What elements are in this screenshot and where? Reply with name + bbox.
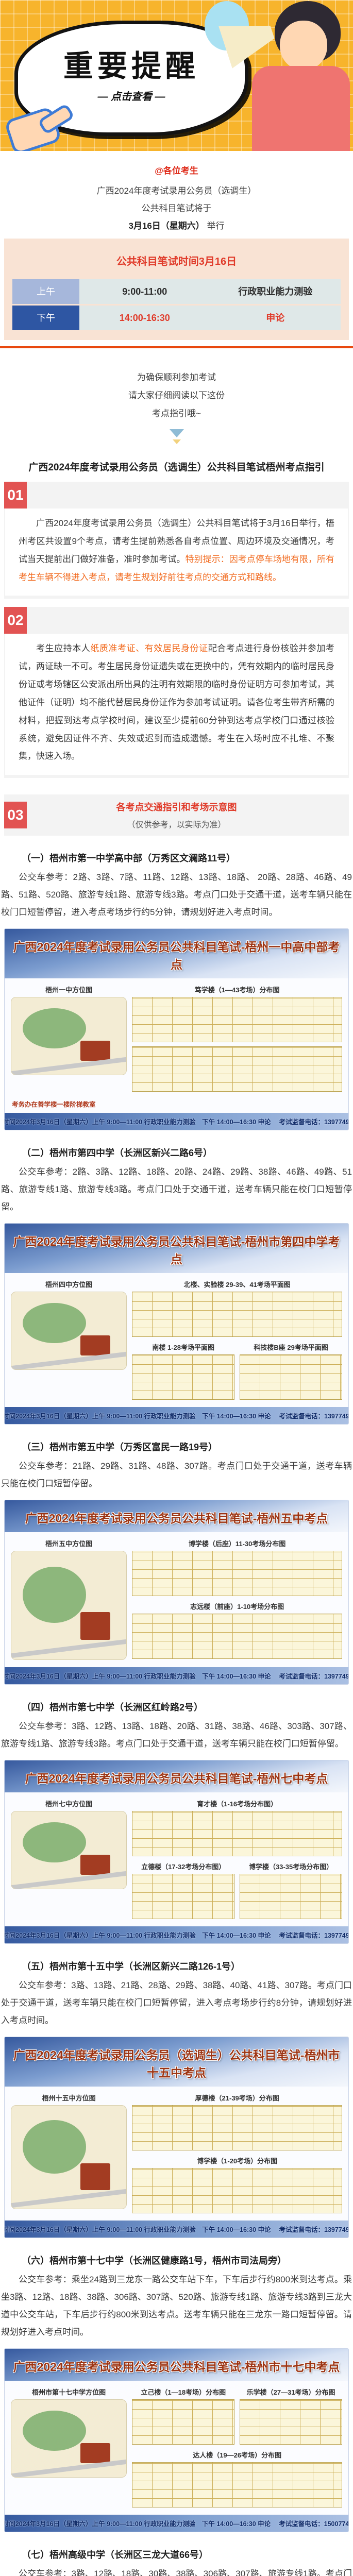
venue-4-poster: 广西2024年度考试录用公务员公共科目笔试-梧州七中考点 梧州七中方位图 育才楼… — [4, 1760, 349, 1944]
venue-7-heading: （七）梧州高级中学（长洲区三龙大道66号） — [4, 2548, 349, 2561]
section-01-badge: 01 — [4, 482, 27, 509]
venue-1-poster: 广西2024年度考试录用公务员公共科目笔试-梧州一中高中部考点 梧州一中方位图 … — [4, 928, 349, 1130]
map-title: 博学楼（1-20考场）分布图 — [132, 2156, 342, 2165]
section-02: 02 考生应持本人纸质准考证、有效居民身份证配合考点进行身份核验并参加考试，两证… — [4, 607, 349, 778]
intro-block: @各位考生 广西2024年度考试录用公务员（选调生） 公共科目笔试将于 3月16… — [0, 151, 353, 231]
map-title: 梧州四中方位图 — [11, 1279, 127, 1289]
room-grid-graphic — [132, 1874, 234, 1919]
section-03-badge: 03 — [4, 802, 27, 828]
venue-6-heading: （六）梧州市第十七中学（长洲区健康路1号，梧州市司法局旁） — [4, 2253, 349, 2267]
pointing-hand-icon — [5, 105, 67, 149]
person-illustration — [242, 0, 350, 151]
person-shirt — [252, 66, 350, 151]
map-title: 梧州七中方位图 — [11, 1799, 127, 1808]
map-title: 博学楼（33-35考场分布图） — [240, 1861, 342, 1871]
section-01: 01 广西2024年度考试录用公务员（选调生）公共科目笔试将于3月16日举行，梧… — [4, 482, 349, 599]
room-grid-graphic — [240, 1874, 342, 1919]
map-title: 南楼 1-28考场平面图 — [132, 1342, 234, 1352]
venue-1-bus: 公交车参考：2路、3路、7路、11路、12路、13路、18路、 20路、28路、… — [1, 869, 352, 921]
intro-line2: 公共科目笔试将于 — [0, 201, 353, 214]
map-title: 达人楼（19—26考场）分布图 — [132, 2450, 342, 2460]
campus-map-graphic — [11, 1551, 127, 1660]
campus-map-graphic — [11, 2399, 127, 2478]
exam-time-bar: 考试时间2024年3月16日（星期六）上午 9:00—11:00 行政职业能力测… — [4, 1671, 271, 1681]
room-grid-graphic — [132, 2399, 234, 2445]
section-03: 03 各考点交通指引和考场示意图 （仅供参考，以实际为准） — [4, 794, 349, 836]
poster-title: 广西2024年度考试录用公务员公共科目笔试-梧州市第四中学考点 — [13, 1235, 340, 1266]
room-grid-graphic — [132, 2168, 342, 2213]
supervision-phone: 考试监督电话：13977495118 — [279, 1671, 349, 1681]
venue-2-bus: 公交车参考：2路、3路、12路、18路、20路、24路、29路、38路、46路、… — [1, 1163, 352, 1216]
section-02-text: 考生应持本人纸质准考证、有效居民身份证配合考点进行身份核验并参加考试，两证缺一不… — [19, 640, 334, 766]
exam-date-rest: 举行 — [207, 221, 225, 231]
poster-title: 广西2024年度考试录用公务员公共科目笔试-梧州一中高中部考点 — [13, 940, 340, 971]
schedule-row-am: 上午 9:00-11:00 行政职业能力测验 — [12, 279, 341, 304]
divider — [0, 346, 353, 348]
room-grid-graphic — [240, 1354, 342, 1400]
campus-map-graphic — [11, 1292, 127, 1370]
hero-title: 重要提醒 — [18, 42, 245, 85]
note-line1: 为确保顺利参加考试 — [0, 370, 353, 383]
map-title: 梧州五中方位图 — [11, 1538, 127, 1548]
intro-line1: 广西2024年度考试录用公务员（选调生） — [0, 183, 353, 196]
map-title: 志远楼（前座）1-10考场分布图 — [132, 1601, 342, 1611]
room-grid-graphic — [132, 1811, 342, 1856]
period-cell: 下午 — [12, 306, 79, 330]
hero-banner: 重要提醒 — 点击查看 — — [0, 0, 353, 151]
venue-5-poster: 广西2024年度考试录用公务员（选调生）公共科目笔试-梧州市十五中考点 梧州十五… — [4, 2037, 349, 2238]
venue-6-poster: 广西2024年度考试录用公务员公共科目笔试-梧州市十七中考点 梧州市第十七中学方… — [4, 2348, 349, 2532]
schedule-row-pm: 下午 14:00-16:30 申论 — [12, 306, 341, 330]
note-line2: 请大家仔细阅读以下这份 — [0, 388, 353, 401]
section-03-title: 各考点交通指引和考场示意图 — [27, 800, 326, 814]
supervision-phone: 考试监督电话：13977495118 — [279, 1411, 349, 1420]
poster-title: 广西2024年度考试录用公务员公共科目笔试-梧州市十七中考点 — [13, 2360, 340, 2374]
exam-time-bar: 考试时间2024年3月16日（星期六）上午 9:00—11:00 行政职业能力测… — [4, 1930, 271, 1940]
map-title: 科技楼B座 29考场平面图 — [240, 1342, 342, 1352]
arrow-down-small-icon — [173, 439, 181, 444]
intro-line3: 3月16日（星期六） 举行 — [0, 218, 353, 231]
page-title: 广西2024年度考试录用公务员（选调生）公共科目笔试梧州考点指引 — [3, 460, 350, 473]
supervision-phone: 考试监督电话：13977495118 — [279, 1930, 349, 1940]
intro-at: @各位考生 — [0, 163, 353, 176]
venue-3-poster: 广西2024年度考试录用公务员公共科目笔试-梧州五中考点 梧州五中方位图 博学楼… — [4, 1500, 349, 1685]
exam-time-bar: 考试时间2024年3月16日（星期六）上午 9:00—11:00 行政职业能力测… — [4, 1116, 271, 1126]
map-title: 立德楼（17-32考场分布图） — [132, 1861, 234, 1871]
campus-map-graphic — [11, 1811, 127, 1889]
note-line3: 考点指引哦~ — [0, 406, 353, 419]
campus-map-graphic — [11, 997, 127, 1075]
poster-title: 广西2024年度考试录用公务员公共科目笔试-梧州七中考点 — [25, 1772, 328, 1785]
map-title: 梧州市第十七中学方位图 — [11, 2387, 127, 2397]
schedule-title: 公共科目笔试时间3月16日 — [10, 253, 343, 268]
map-title: 博学楼（后座）11-30考场分布图 — [132, 1538, 342, 1548]
section-02-highlight: 纸质准考证、有效居民身份证 — [90, 643, 208, 653]
supervision-phone: 考试监督电话：15007743185 — [279, 2518, 349, 2528]
schedule-table: 公共科目笔试时间3月16日 上午 9:00-11:00 行政职业能力测验 下午 … — [4, 239, 349, 340]
map-title: 北楼、实验楼 29-39、41考场平面图 — [132, 1279, 342, 1289]
room-grid-graphic — [132, 2105, 342, 2150]
map-title: 育才楼（1-16考场分布图） — [132, 1799, 342, 1808]
venue-6-bus: 公交车参考：乘坐24路到三龙东一路公交车站下车，下车后步行约800米到达考点。乘… — [1, 2271, 352, 2341]
subject-cell: 申论 — [210, 306, 341, 330]
poster-note: 考务办在善学楼一楼阶梯教室 — [5, 1099, 348, 1113]
exam-time-bar: 考试时间2024年3月16日（星期六）上午 9:00—11:00 行政职业能力测… — [4, 1411, 271, 1420]
exam-time-bar: 考试时间2024年3月16日（星期六）上午 9:00—11:00 行政职业能力测… — [4, 2518, 271, 2528]
notes-block: 为确保顺利参加考试 请大家仔细阅读以下这份 考点指引哦~ — [0, 370, 353, 419]
campus-map-graphic — [11, 2105, 127, 2209]
room-grid-graphic — [132, 1551, 342, 1596]
hero-subtitle: — 点击查看 — — [18, 88, 245, 103]
time-cell: 9:00-11:00 — [79, 279, 210, 304]
venue-5-heading: （五）梧州市第十五中学（长洲区新兴二路126-1号） — [4, 1959, 349, 1973]
arrow-down-icon — [170, 429, 184, 437]
map-title: 梧州十五中方位图 — [11, 2093, 127, 2103]
venue-5-bus: 公交车参考：3路、13路、21路、28路、29路、38路、40路、41路、307… — [1, 1977, 352, 2029]
room-grid-graphic — [132, 1354, 234, 1400]
venue-2-poster: 广西2024年度考试录用公务员公共科目笔试-梧州市第四中学考点 梧州四中方位图 … — [4, 1223, 349, 1425]
map-title: 乐学楼（27—31考场）分布图 — [240, 2387, 342, 2397]
venue-1-heading: （一）梧州市第一中学高中部（万秀区文澜路11号） — [4, 851, 349, 865]
map-title: 梧州一中方位图 — [11, 985, 127, 994]
poster-title: 广西2024年度考试录用公务员公共科目笔试-梧州五中考点 — [25, 1512, 328, 1525]
venue-4-bus: 公交车参考：3路、12路、13路、18路、20路、31路、38路、46路、303… — [1, 1718, 352, 1753]
venue-3-heading: （三）梧州市第五中学（万秀区富民一路19号） — [4, 1440, 349, 1453]
venue-4-heading: （四）梧州市第七中学（长洲区红岭路2号） — [4, 1700, 349, 1714]
room-grid-graphic — [132, 1614, 342, 1659]
exam-date: 3月16日（星期六） — [128, 221, 204, 231]
poster-title: 广西2024年度考试录用公务员（选调生）公共科目笔试-梧州市十五中考点 — [13, 2048, 340, 2079]
room-grid-graphic — [132, 1046, 342, 1092]
period-cell: 上午 — [12, 279, 79, 304]
section-03-subtitle: （仅供参考，以实际为准） — [27, 818, 326, 830]
venue-7-bus: 公交车参考：3路、12路、18路、30路、38路、306路、307路、旅游专线1… — [1, 2565, 352, 2576]
supervision-phone: 考试监督电话：13977495118 — [279, 1116, 349, 1126]
room-grid-graphic — [132, 2462, 342, 2507]
person-face — [280, 21, 327, 70]
time-cell: 14:00-16:30 — [79, 306, 210, 330]
map-title: 立己楼（1—18考场）分布图 — [132, 2387, 234, 2397]
venue-3-bus: 公交车参考：21路、29路、31路、48路、307路。考点门口处于交通干道，送考… — [1, 1458, 352, 1493]
section-02-badge: 02 — [4, 607, 27, 634]
subject-cell: 行政职业能力测验 — [210, 279, 341, 304]
supervision-phone: 考试监督电话：13977495118 — [279, 2224, 349, 2234]
section-01-text: 广西2024年度考试录用公务员（选调生）公共科目笔试将于3月16日举行，梧州考区… — [19, 515, 334, 586]
room-grid-graphic — [132, 1292, 342, 1337]
venue-2-heading: （二）梧州市第四中学（长洲区新兴二路6号） — [4, 1146, 349, 1159]
exam-time-bar: 考试时间2024年3月16日（星期六）上午 9:00—11:00 行政职业能力测… — [4, 2224, 271, 2234]
room-grid-graphic — [240, 2399, 342, 2445]
map-title: 笃学楼（1—43考场）分布图 — [132, 985, 342, 994]
room-grid-graphic — [132, 997, 342, 1042]
map-title: 厚德楼（21-39考场）分布图 — [132, 2093, 342, 2103]
